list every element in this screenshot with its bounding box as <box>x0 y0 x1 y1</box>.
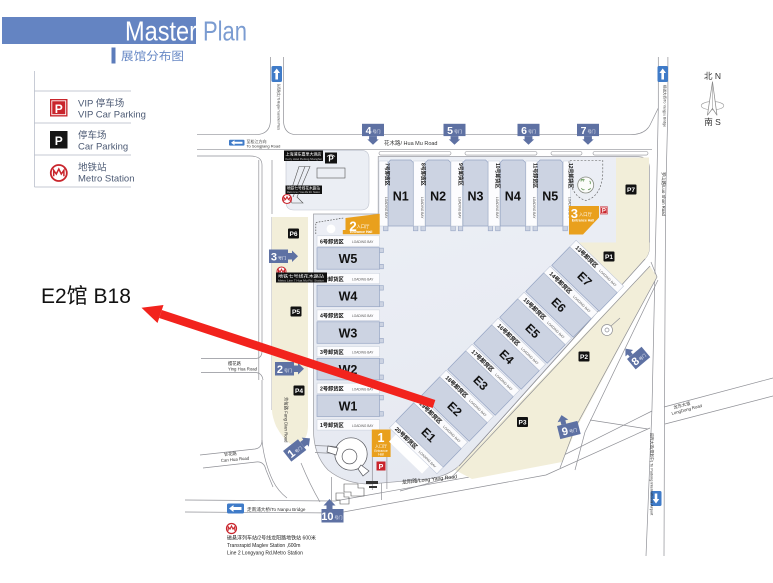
svg-text:P5: P5 <box>292 309 300 316</box>
svg-text:E2馆 B18: E2馆 B18 <box>41 285 131 308</box>
svg-text:N1: N1 <box>393 190 409 204</box>
svg-text:入口厅: 入口厅 <box>357 224 371 229</box>
svg-text:W5: W5 <box>339 252 358 266</box>
svg-text:LOADING BAY: LOADING BAY <box>495 197 499 219</box>
svg-text:12号卸货区: 12号卸货区 <box>567 163 574 189</box>
svg-text:VIP Car Parking: VIP Car Parking <box>78 110 146 121</box>
svg-text:LOADING BAY: LOADING BAY <box>458 197 462 219</box>
svg-text:LOADING BAY: LOADING BAY <box>352 278 374 282</box>
svg-text:杨浦大桥/To Yangpu Bridge: 杨浦大桥/To Yangpu Bridge <box>663 85 668 127</box>
svg-text:W3: W3 <box>339 326 358 340</box>
svg-text:VIP 停车场: VIP 停车场 <box>78 98 124 110</box>
svg-text:Car Parking: Car Parking <box>78 142 128 153</box>
svg-text:2: 2 <box>277 364 283 376</box>
svg-text:N3: N3 <box>468 190 484 204</box>
svg-text:3号卸货区: 3号卸货区 <box>320 348 344 356</box>
svg-text:LOADING BAY: LOADING BAY <box>352 240 374 244</box>
svg-text:7: 7 <box>581 125 587 137</box>
svg-text:N4: N4 <box>505 190 521 204</box>
svg-text:4号卸货区: 4号卸货区 <box>320 311 344 319</box>
svg-text:7号卸货区: 7号卸货区 <box>383 163 390 186</box>
svg-text:号门: 号门 <box>373 128 381 134</box>
svg-text:展馆分布图: 展馆分布图 <box>121 49 184 63</box>
svg-text:Ying Hua Road: Ying Hua Road <box>228 367 258 372</box>
svg-text:To Songjiang Road: To Songjiang Road <box>247 143 281 148</box>
svg-text:北 N: 北 N <box>704 71 721 81</box>
svg-text:Hall: Hall <box>378 452 384 456</box>
svg-text:W4: W4 <box>339 290 358 304</box>
svg-text:3: 3 <box>271 251 277 263</box>
svg-text:号门: 号门 <box>284 367 292 373</box>
svg-text:9号卸货区: 9号卸货区 <box>457 163 464 186</box>
svg-text:10: 10 <box>321 511 333 523</box>
svg-text:张杨路(北) To Maglev Yuanshen Plaz: 张杨路(北) To Maglev Yuanshen Plaza <box>277 84 282 130</box>
svg-text:2号卸货区: 2号卸货区 <box>320 385 344 393</box>
svg-text:号门: 号门 <box>588 128 596 134</box>
svg-text:6号卸货区: 6号卸货区 <box>320 237 344 245</box>
svg-text:Kerry Hotel Pudong,Shanghai: Kerry Hotel Pudong,Shanghai <box>286 157 322 161</box>
svg-text:6: 6 <box>521 125 527 137</box>
svg-text:号门: 号门 <box>528 128 536 134</box>
svg-text:号门: 号门 <box>454 128 462 134</box>
svg-text:走南浦大桥/To Nanpu Bridge: 走南浦大桥/To Nanpu Bridge <box>247 506 306 513</box>
svg-text:Entrance Hall: Entrance Hall <box>572 218 594 222</box>
svg-text:Line 2 Longyang Rd.Metro Stati: Line 2 Longyang Rd.Metro Station <box>227 551 303 557</box>
svg-text:入口厅: 入口厅 <box>375 444 387 449</box>
svg-text:号门: 号门 <box>335 514 343 520</box>
svg-text:Entrance Hall: Entrance Hall <box>350 230 372 234</box>
svg-text:P: P <box>379 464 384 471</box>
svg-text:花木路/ Hua Mu Road: 花木路/ Hua Mu Road <box>384 139 438 147</box>
svg-text:LOADING BAY: LOADING BAY <box>420 197 424 219</box>
svg-text:LOADING BAY: LOADING BAY <box>352 387 374 391</box>
svg-text:LOADING BAY: LOADING BAY <box>352 314 374 318</box>
svg-text:入口厅: 入口厅 <box>579 212 593 217</box>
svg-text:P1: P1 <box>605 254 613 261</box>
svg-text:4: 4 <box>366 125 372 137</box>
svg-text:罗山路/Luo Shan Road: 罗山路/Luo Shan Road <box>660 172 667 217</box>
svg-text:Metro Station: Metro Station <box>78 174 135 185</box>
svg-text:LOADING BAY: LOADING BAY <box>532 197 536 219</box>
svg-text:P: P <box>55 134 63 148</box>
svg-text:LOADING BAY: LOADING BAY <box>352 351 374 355</box>
svg-text:迎宾大道(规划中) To Pudong Internatio: 迎宾大道(规划中) To Pudong International Airpor… <box>650 433 655 516</box>
svg-text:5: 5 <box>447 125 453 137</box>
svg-text:Metro Line 7 Hua Mu Rd. Statio: Metro Line 7 Hua Mu Rd. Station <box>287 190 320 194</box>
svg-text:号门: 号门 <box>278 255 286 261</box>
svg-text:P3: P3 <box>518 419 526 426</box>
svg-text:W1: W1 <box>339 400 358 414</box>
svg-text:P: P <box>602 209 606 215</box>
svg-text:Master: Master <box>125 16 197 47</box>
svg-text:磁悬浮列车站/2号线龙阳路地铁站 600米: 磁悬浮列车站/2号线龙阳路地铁站 600米 <box>227 535 316 542</box>
svg-text:P6: P6 <box>289 231 297 238</box>
svg-text:1号卸货区: 1号卸货区 <box>320 421 344 429</box>
svg-text:停车场: 停车场 <box>78 130 107 142</box>
svg-text:地铁站: 地铁站 <box>78 162 107 174</box>
svg-text:N5: N5 <box>542 190 558 204</box>
svg-text:P2: P2 <box>580 354 588 361</box>
svg-text:芳甸路 Fang Dian Road: 芳甸路 Fang Dian Road <box>283 397 290 443</box>
svg-text:P4: P4 <box>295 388 303 395</box>
svg-text:11号卸货区: 11号卸货区 <box>532 163 539 188</box>
svg-text:8号卸货区: 8号卸货区 <box>420 163 427 186</box>
svg-text:LOADING BAY: LOADING BAY <box>384 197 388 219</box>
svg-text:Plan: Plan <box>203 16 247 47</box>
svg-text:Metro Line 7 Hua Mu Rd. Statio: Metro Line 7 Hua Mu Rd. Station <box>278 279 324 283</box>
svg-text:P7: P7 <box>627 187 635 194</box>
svg-text:Transrapid Maglev Station ,600: Transrapid Maglev Station ,600m <box>227 543 300 549</box>
svg-text:10号卸货区: 10号卸货区 <box>494 163 501 189</box>
svg-text:N2: N2 <box>430 190 446 204</box>
svg-text:P: P <box>55 102 63 116</box>
svg-text:LOADING BAY: LOADING BAY <box>352 424 374 428</box>
svg-text:南 S: 南 S <box>704 117 721 127</box>
